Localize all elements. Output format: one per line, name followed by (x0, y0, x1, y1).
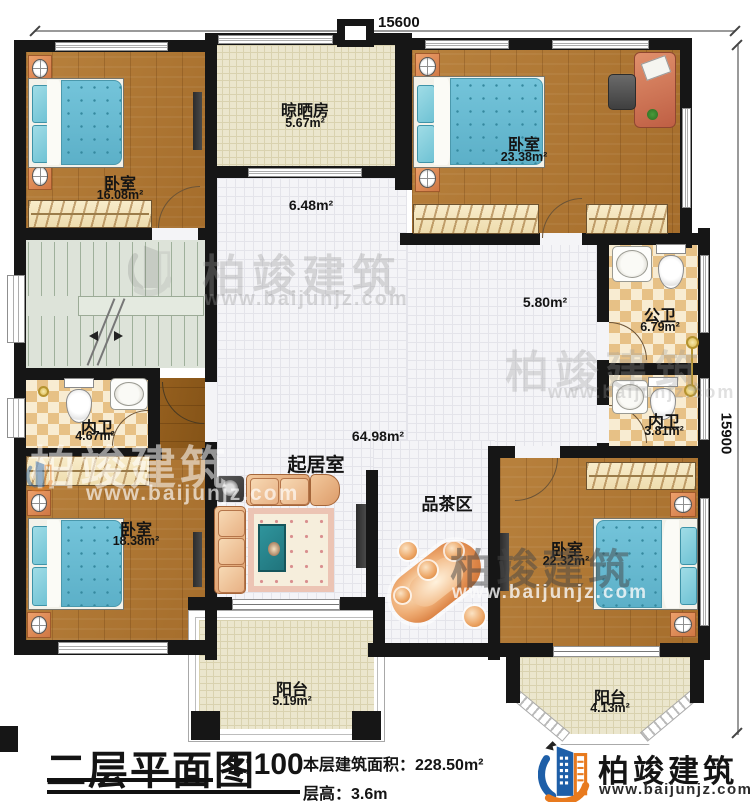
lamp-icon (32, 166, 48, 186)
tv (356, 504, 366, 568)
stair-treads (28, 242, 204, 296)
wardrobe-rail (589, 218, 666, 220)
chimney-flue (345, 26, 366, 40)
sliding-door (232, 599, 340, 610)
stair-direction-arrow (84, 331, 98, 341)
mattress (61, 80, 122, 165)
bed (28, 518, 124, 610)
table-decor (268, 542, 280, 556)
nightstand (670, 492, 696, 517)
ceiling-lamp (38, 386, 49, 397)
brand-url: www.baijunjz.com (599, 781, 750, 798)
window (425, 40, 509, 49)
sofa-cushion (218, 538, 245, 565)
plant-icon (647, 109, 658, 120)
sink-basin (616, 250, 648, 278)
balcony-center-floor (199, 620, 374, 729)
laptop-icon (641, 55, 672, 81)
window (700, 498, 709, 626)
wall (188, 597, 232, 610)
balcony-side-wall (506, 657, 520, 703)
door-opening (597, 405, 609, 443)
sink (612, 246, 652, 282)
wardrobe-rail (589, 475, 693, 477)
sofa-cushion (218, 510, 245, 537)
room-area: 5.19m² (272, 694, 312, 708)
desk (634, 52, 676, 128)
sofa-corner (310, 474, 340, 506)
room-area: 5.80m² (523, 294, 567, 310)
sink-basin (114, 382, 144, 406)
title-underline (47, 790, 300, 794)
tea-stool (399, 542, 417, 560)
pillow (680, 567, 697, 605)
room-area: 4.13m² (590, 701, 630, 715)
window (55, 42, 168, 51)
room-name: 起居室 (287, 450, 344, 477)
plan-scale: 1:100 (227, 748, 304, 782)
wardrobe (28, 200, 152, 228)
wall (368, 643, 553, 657)
balcony-post (191, 711, 220, 740)
lamp-icon (419, 169, 436, 188)
window (248, 168, 362, 177)
dimension-height-label: 15900 (718, 403, 735, 465)
dimension-line-right (737, 45, 739, 735)
window (7, 275, 25, 343)
stair-treads (28, 316, 204, 366)
window (218, 35, 333, 44)
watermark-url: www.baijunjz.com (548, 382, 735, 403)
nightstand (27, 612, 51, 638)
tea-stool (464, 606, 485, 627)
title-underline (47, 778, 213, 782)
pillow (680, 527, 697, 565)
wardrobe (586, 462, 696, 490)
bed (28, 78, 124, 168)
tea-stool (419, 561, 437, 579)
toilet-tank (64, 378, 94, 388)
lamp-icon (674, 496, 692, 513)
toilet (656, 244, 686, 290)
tv-partition-wall (366, 470, 378, 600)
dimension-width-label: 15600 (378, 14, 420, 31)
floor-height-label: 层高：3.6m (303, 780, 387, 804)
tv (193, 92, 202, 150)
room-area: 16.08m² (97, 188, 144, 202)
nightstand (415, 165, 440, 192)
room-area: 23.38m² (501, 150, 548, 164)
room-area: 5.67m² (285, 116, 325, 130)
window (7, 398, 25, 438)
wall (340, 597, 385, 610)
lamp-icon (32, 59, 48, 78)
window (700, 255, 709, 333)
toilet-tank (656, 244, 686, 254)
stair-landing (78, 296, 204, 316)
brand-logo-icon (538, 736, 592, 802)
coffee-table (258, 524, 286, 572)
lamp-icon (419, 57, 436, 76)
wardrobe (586, 204, 668, 234)
wardrobe-rail (31, 213, 148, 215)
window (58, 642, 168, 654)
watermark-url: www.baijunjz.com (204, 288, 409, 311)
tv (193, 532, 202, 587)
pillow (417, 85, 435, 123)
window (552, 40, 649, 49)
stair-direction-arrow (114, 331, 128, 341)
toilet-bowl (658, 255, 684, 289)
wall-stub (0, 726, 18, 752)
nightstand (670, 612, 696, 637)
sink (110, 378, 148, 410)
pillow (417, 125, 435, 163)
lamp-icon (31, 616, 47, 634)
bed-sheet (662, 520, 679, 608)
sofa-cushion (218, 566, 245, 593)
room-name: 品茶区 (422, 490, 473, 515)
sofa (214, 506, 246, 594)
room-area: 18.38m² (113, 534, 160, 548)
door-opening (515, 446, 560, 458)
wardrobe-rail (416, 218, 535, 220)
desk-chair (608, 74, 636, 110)
watermark-url: www.baijunjz.com (452, 582, 648, 604)
wall (373, 610, 385, 647)
watermark-url: www.baijunjz.com (86, 482, 299, 506)
room-area: 64.98m² (352, 428, 404, 444)
wall (660, 643, 710, 657)
floor-plan: 15600 15900 (0, 0, 750, 805)
balcony-post (352, 711, 381, 740)
balcony-side-wall (690, 657, 704, 703)
window (682, 108, 691, 208)
watermark-logo-icon (26, 444, 54, 502)
wardrobe (413, 204, 539, 234)
room-area: 3.81m² (644, 424, 684, 438)
floor-area-label: 本层建筑面积：228.50m² (303, 751, 484, 775)
wall (14, 40, 26, 655)
tea-stool (395, 588, 410, 603)
room-area: 6.48m² (289, 197, 333, 213)
lamp-icon (674, 616, 692, 633)
plan-title: 二层平面图 (46, 738, 256, 796)
watermark-logo-icon (128, 234, 174, 296)
room-area: 6.79m² (640, 320, 680, 334)
sliding-door (553, 646, 660, 657)
